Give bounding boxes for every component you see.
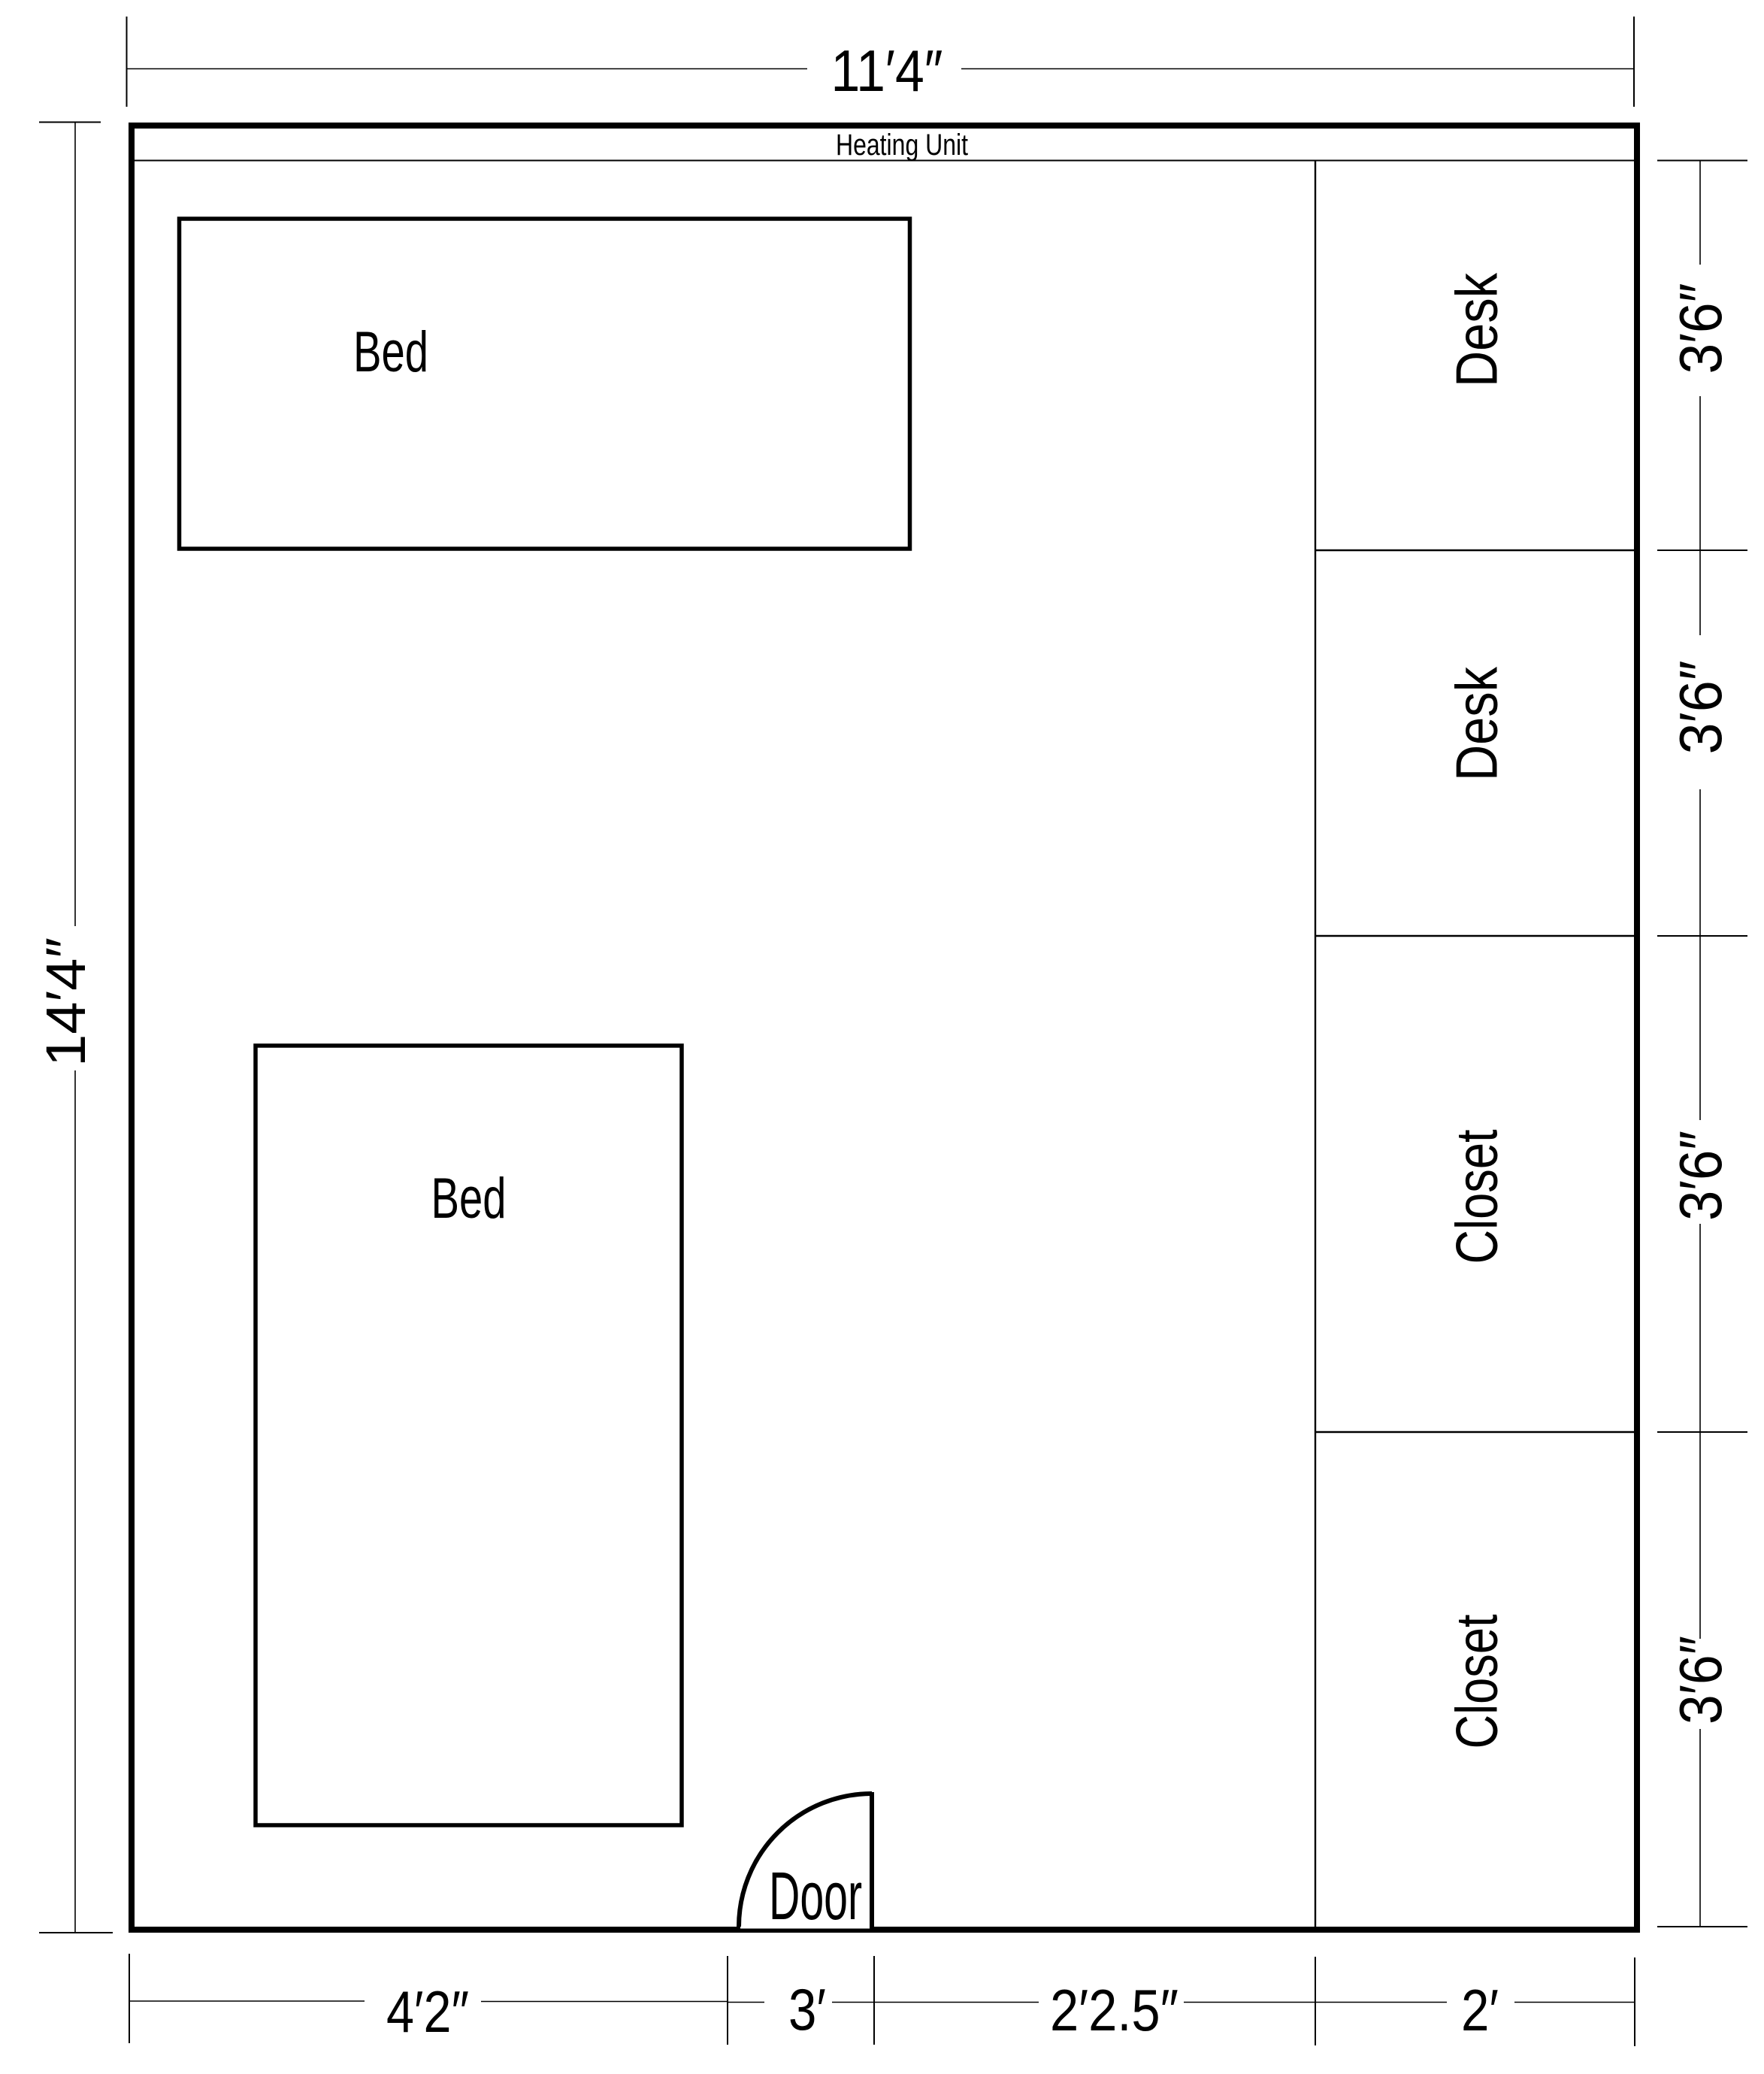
svg-text:Bed: Bed <box>431 1167 507 1231</box>
svg-text:2′: 2′ <box>1461 1977 1499 2043</box>
svg-text:14′4″: 14′4″ <box>35 937 97 1067</box>
svg-text:3′6″: 3′6″ <box>1667 1131 1734 1221</box>
svg-text:3′: 3′ <box>788 1976 826 2042</box>
svg-text:3′6″: 3′6″ <box>1667 283 1734 374</box>
svg-text:Desk: Desk <box>1444 666 1510 781</box>
svg-text:Closet: Closet <box>1444 1129 1510 1264</box>
svg-text:3′6″: 3′6″ <box>1667 1636 1734 1724</box>
svg-text:Heating Unit: Heating Unit <box>836 129 968 162</box>
svg-text:Bed: Bed <box>353 320 428 384</box>
svg-text:Closet: Closet <box>1444 1614 1510 1749</box>
svg-text:3′6″: 3′6″ <box>1667 661 1734 755</box>
svg-text:4′2″: 4′2″ <box>386 1979 469 2045</box>
svg-text:11′4″: 11′4″ <box>831 38 943 104</box>
svg-text:Desk: Desk <box>1444 272 1510 387</box>
svg-text:Door: Door <box>769 1859 862 1934</box>
svg-text:2′2.5″: 2′2.5″ <box>1050 1977 1179 2043</box>
